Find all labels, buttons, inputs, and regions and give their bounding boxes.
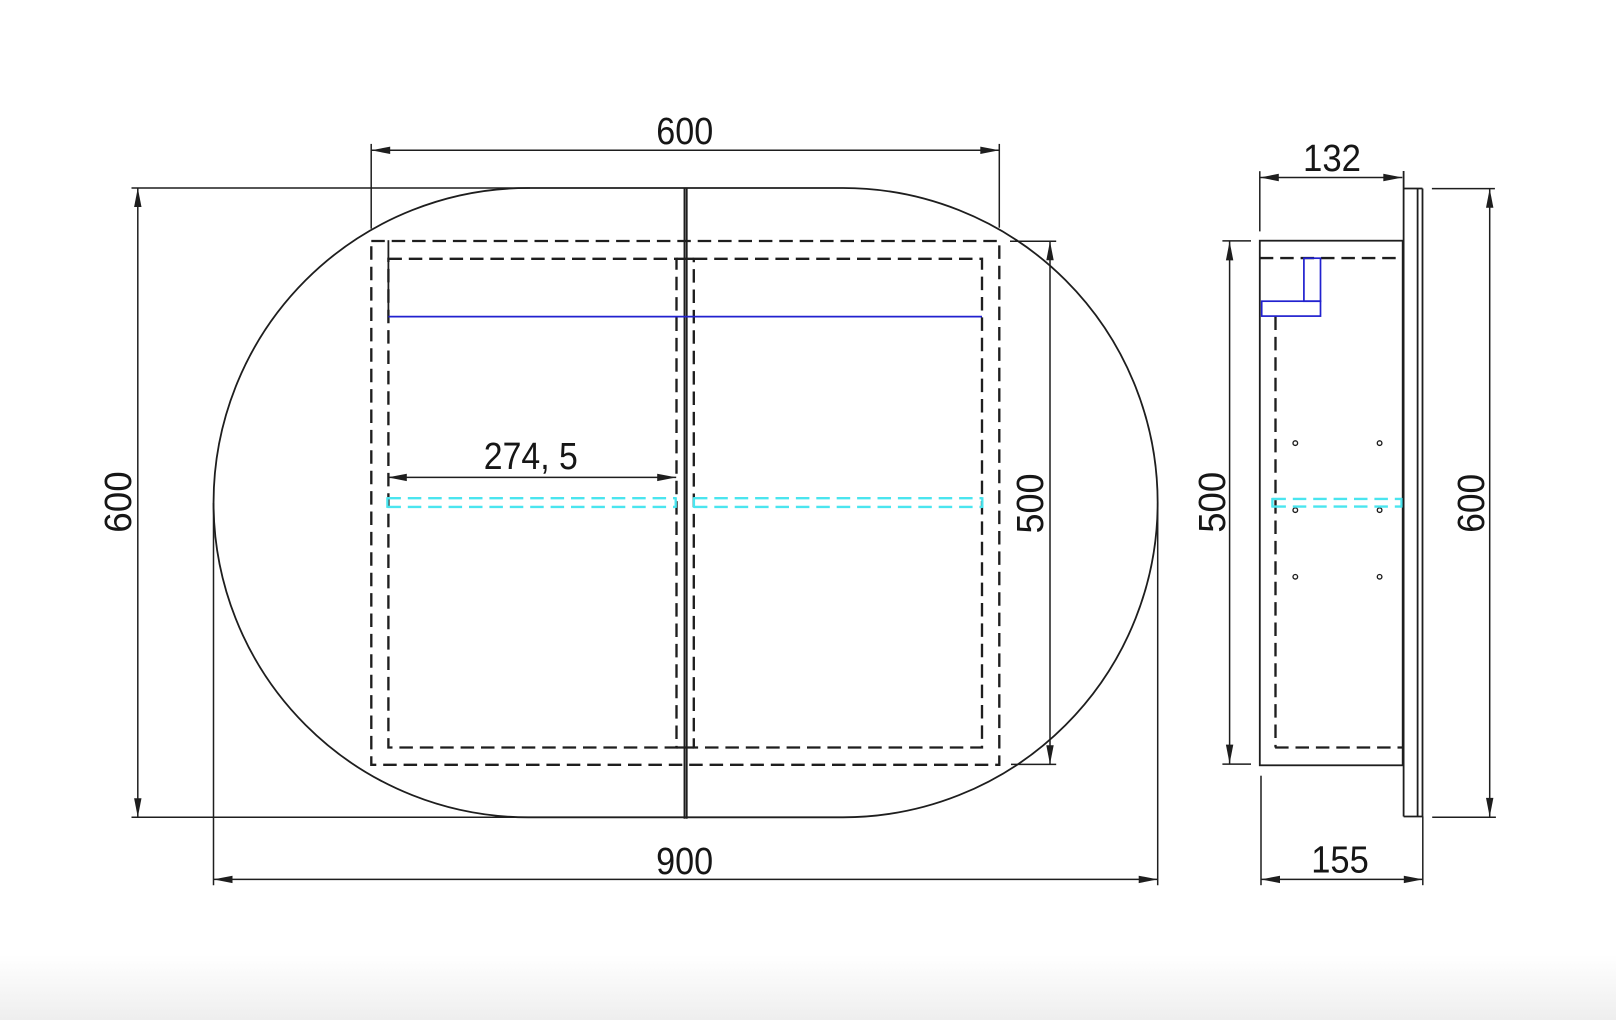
svg-text:500: 500	[1010, 474, 1052, 534]
svg-text:155: 155	[1311, 840, 1369, 882]
svg-text:600: 600	[656, 111, 713, 153]
svg-text:274, 5: 274, 5	[484, 436, 578, 478]
svg-text:900: 900	[656, 841, 713, 883]
svg-text:132: 132	[1303, 138, 1361, 180]
svg-text:600: 600	[1451, 474, 1493, 533]
svg-text:600: 600	[98, 471, 140, 533]
svg-text:500: 500	[1192, 472, 1234, 533]
